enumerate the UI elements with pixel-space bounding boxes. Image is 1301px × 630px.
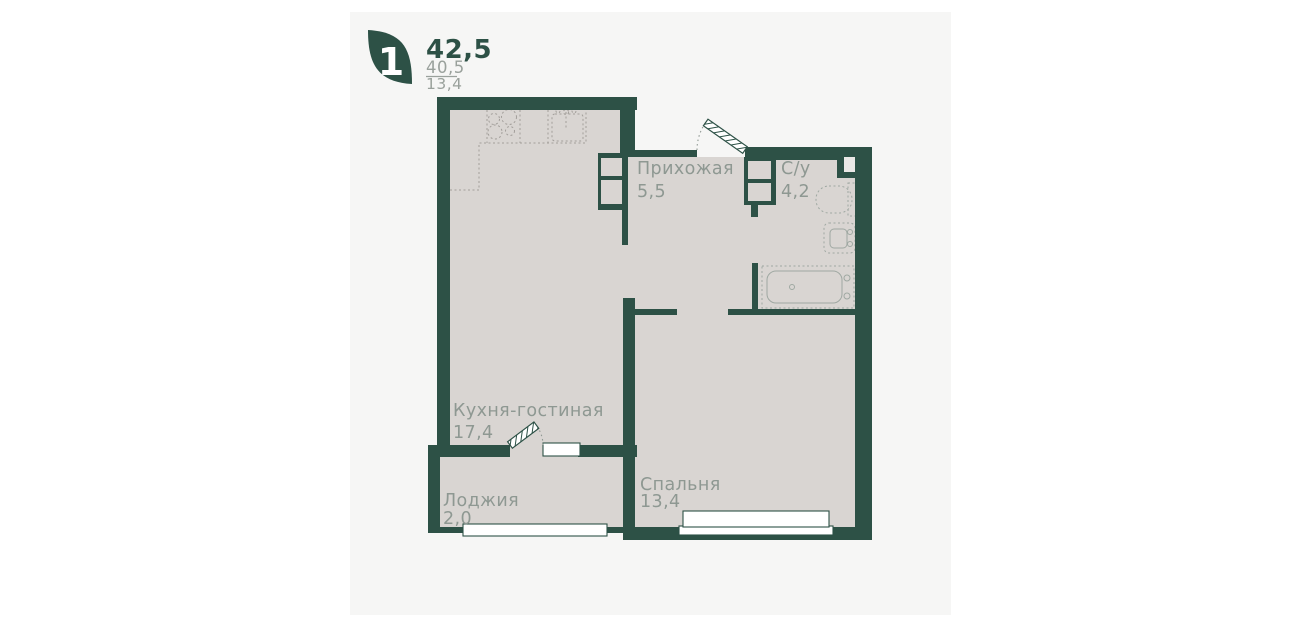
loggia-window xyxy=(463,524,607,536)
room-area-hallway: 5,5 xyxy=(637,182,666,202)
room-area-kitchen-living: 17,4 xyxy=(453,423,494,443)
rooms-count-badge: 1 xyxy=(378,40,404,84)
room-area-bedroom: 13,4 xyxy=(640,492,681,512)
duct-niche xyxy=(844,157,855,172)
room-label-kitchen-living: Кухня-гостиная xyxy=(453,401,604,421)
room-label-loggia: Лоджия xyxy=(443,491,519,511)
balcony-window xyxy=(543,443,580,456)
bedroom-window xyxy=(683,511,829,527)
room-label-bathroom: С/у xyxy=(781,159,811,179)
room-label-hallway: Прихожая xyxy=(637,159,734,179)
page: Прихожая 5,5 С/у 4,2 Кухня-гостиная 17,4… xyxy=(0,0,1301,630)
area-kitchen: 13,4 xyxy=(426,75,463,93)
hallway-floor xyxy=(628,157,757,310)
bedroom-doorway-floor xyxy=(677,305,728,317)
room-area-bathroom: 4,2 xyxy=(781,182,810,202)
room-area-loggia: 2,0 xyxy=(443,509,472,529)
